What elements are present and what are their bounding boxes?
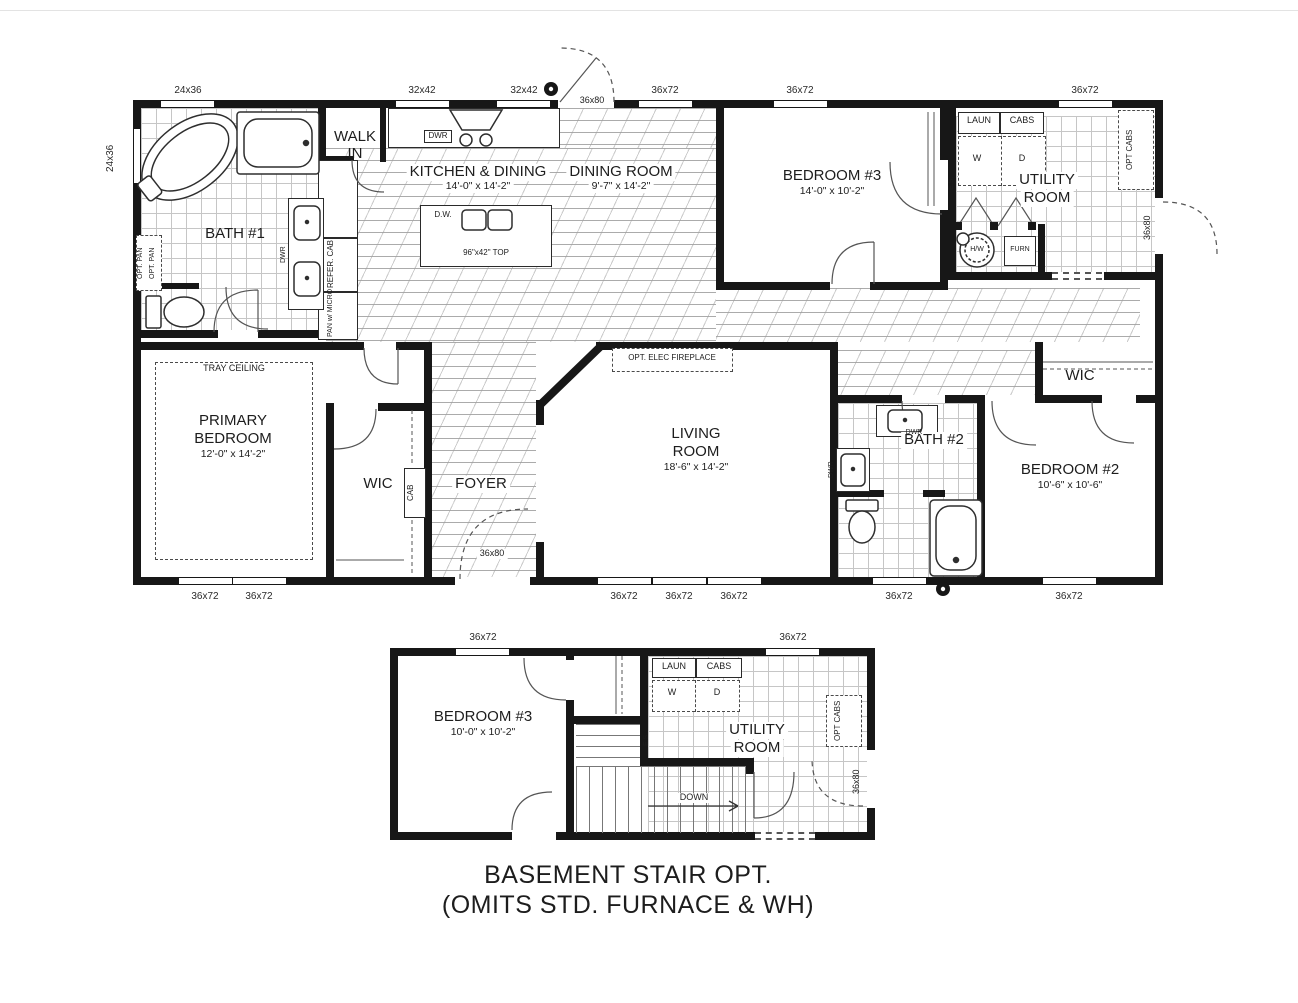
room-dims-lower-bedroom3: 10'-0" x 10'-2" <box>451 727 516 739</box>
room-label-living2: ROOM <box>673 444 720 461</box>
window-size-label: 32x42 <box>408 85 435 96</box>
faucet-dot <box>904 419 907 422</box>
bedroom2-door-arc <box>992 401 1036 445</box>
room-label-walkin2: IN <box>348 146 363 163</box>
room-label-kitchen: KITCHEN & DINING <box>407 164 550 181</box>
wic-door-arc <box>334 409 376 449</box>
lower-bedroom-exit-arc <box>512 792 552 830</box>
dryer-label: D <box>714 688 721 698</box>
dwr-label-vanity: DWR <box>280 240 287 270</box>
island-top-label: 96"x42" TOP <box>463 249 509 258</box>
bath1-door-arc <box>214 290 258 332</box>
walkin-door-arc <box>352 160 384 192</box>
fireplace-label: OPT. ELEC FIREPLACE <box>628 354 716 363</box>
primary-door-arc <box>364 348 398 384</box>
furnace-label: FURN <box>1010 246 1029 254</box>
window-size-label: 24x36 <box>174 85 201 96</box>
window-size-label: 36x72 <box>469 632 496 643</box>
bedroom3-hall-door-arc <box>832 242 874 284</box>
water-heater-vent <box>957 233 969 245</box>
wic2-door-arc <box>1092 401 1134 443</box>
island-sink2 <box>488 210 512 230</box>
room-label-lower-bedroom3: BEDROOM #3 <box>434 709 532 726</box>
caption-line1: BASEMENT STAIR OPT. <box>484 862 772 890</box>
es-label: E.S. <box>948 170 955 196</box>
toilet2-tank <box>846 500 878 511</box>
lower-utility-door-arc <box>754 772 794 818</box>
window-size-label: 36x72 <box>1071 85 1098 96</box>
door-size-label: 36x80 <box>577 96 608 106</box>
washer-label: W <box>973 154 982 164</box>
burner <box>480 134 492 146</box>
wc-door-arc <box>226 287 268 329</box>
window-size-label: 36x72 <box>885 591 912 602</box>
opt-cabs-label: OPT CABS <box>1126 118 1146 182</box>
door-size-label: 36x80 <box>852 762 861 802</box>
bedroom3-closet-rod <box>928 112 934 206</box>
room-label-bedroom2: BEDROOM #2 <box>1021 462 1119 479</box>
room-label-lower-utility: UTILITY <box>726 722 788 739</box>
water-heater-label: H/W <box>970 246 984 254</box>
bifold-jambs <box>954 222 1036 230</box>
caption-line2: (OMITS STD. FURNACE & WH) <box>442 892 814 920</box>
opt-pan-label: OPT. PAN <box>149 238 156 288</box>
faucet-dot <box>306 221 309 224</box>
opt-pan-label: OPT. PAN <box>137 238 144 288</box>
dryer-label: D <box>1019 154 1026 164</box>
room-label-foyer: FOYER <box>452 476 510 493</box>
room-label-primary2: BEDROOM <box>194 431 272 448</box>
window-size-label: 36x72 <box>651 85 678 96</box>
dwr-label-bath2v: DWR <box>828 456 835 484</box>
tub-drain <box>304 141 309 146</box>
toilet1-bowl <box>164 297 204 327</box>
cabs-label: CABS <box>1010 116 1035 126</box>
room-label-wic-primary: WIC <box>363 476 392 493</box>
opt-cabs-label: OPT CABS <box>834 700 854 742</box>
exterior-symbols <box>544 82 950 596</box>
window-size-label: 36x72 <box>720 591 747 602</box>
window-size-label: 36x72 <box>779 632 806 643</box>
faucet-dot <box>852 468 855 471</box>
window-size-label: 24x36 <box>106 132 117 184</box>
bath1-tub-inner <box>244 119 312 167</box>
tub-drain <box>954 558 959 563</box>
toilet2-bowl <box>849 511 875 543</box>
window-size-label: 36x72 <box>191 591 218 602</box>
dwr-label-bath2: DWR <box>906 429 923 437</box>
window-size-label: 36x72 <box>610 591 637 602</box>
laun-label: LAUN <box>662 662 686 672</box>
range-hood-icon <box>450 110 502 130</box>
room-label-bath1: BATH #1 <box>205 226 265 243</box>
room-label-walkin: WALK <box>334 129 376 146</box>
room-dims-kitchen: 14'-0" x 14'-2" <box>443 181 514 193</box>
window-size-label: 36x72 <box>665 591 692 602</box>
washer-label: W <box>668 688 677 698</box>
front-door-arc <box>460 509 528 579</box>
room-label-living: LIVING <box>671 426 720 443</box>
room-dims-living: 18'-6" x 14'-2" <box>664 462 729 474</box>
fixtures-layer <box>0 0 1298 1003</box>
room-label-dining: DINING ROOM <box>566 164 675 181</box>
cabs-label: CABS <box>707 662 732 672</box>
window-size-label: 32x42 <box>510 85 537 96</box>
island-sink1 <box>462 210 486 230</box>
soaker-tub-icon <box>123 96 255 220</box>
lower-bedroom-door-arc <box>524 658 566 700</box>
floor-plan-page: 24x36 32x42 32x42 36x80 36x72 36x72 36x7… <box>0 0 1298 1003</box>
room-label-bedroom3: BEDROOM #3 <box>783 168 881 185</box>
room-dims-primary: 12'-0" x 14'-2" <box>201 449 266 461</box>
rear-door-arc <box>560 48 614 102</box>
tray-ceiling-label: TRAY CEILING <box>200 364 268 374</box>
room-label-primary: PRIMARY <box>199 413 267 430</box>
faucet-dot <box>306 277 309 280</box>
dishwasher-label: D.W. <box>434 211 451 220</box>
meter-dot <box>941 587 945 591</box>
window-size-label: 36x72 <box>786 85 813 96</box>
dwr-label: DWR <box>428 132 447 141</box>
room-label-utility2: ROOM <box>1021 190 1074 207</box>
toilet1-tank <box>146 296 161 328</box>
door-size-label: 36x80 <box>477 549 508 559</box>
chamfer-wall <box>541 346 601 404</box>
room-label-utility: UTILITY <box>1016 172 1078 189</box>
room-label-wic-bedroom2: WIC <box>1065 368 1094 385</box>
exterior-light-dot <box>549 87 553 91</box>
pan-micro-label: PAN w/ MICRO <box>327 295 351 337</box>
utility-exterior-door-arc <box>1163 202 1217 254</box>
window-size-label: 36x72 <box>245 591 272 602</box>
room-dims-bedroom3: 14'-0" x 10'-2" <box>800 186 865 198</box>
cab-label: CAB <box>407 474 415 512</box>
room-dims-dining: 9'-7" x 14'-2" <box>589 181 654 193</box>
window-size-label: 36x72 <box>1055 591 1082 602</box>
refer-cab-label: REFER. CAB <box>327 242 351 288</box>
burner <box>460 134 472 146</box>
laun-label: LAUN <box>967 116 991 126</box>
room-label-lower-utility2: ROOM <box>731 740 784 757</box>
es-label: E.S. <box>643 726 650 752</box>
down-label: DOWN <box>677 793 712 803</box>
door-size-label: 36x80 <box>1143 203 1152 253</box>
room-dims-bedroom2: 10'-6" x 10'-6" <box>1038 480 1103 492</box>
